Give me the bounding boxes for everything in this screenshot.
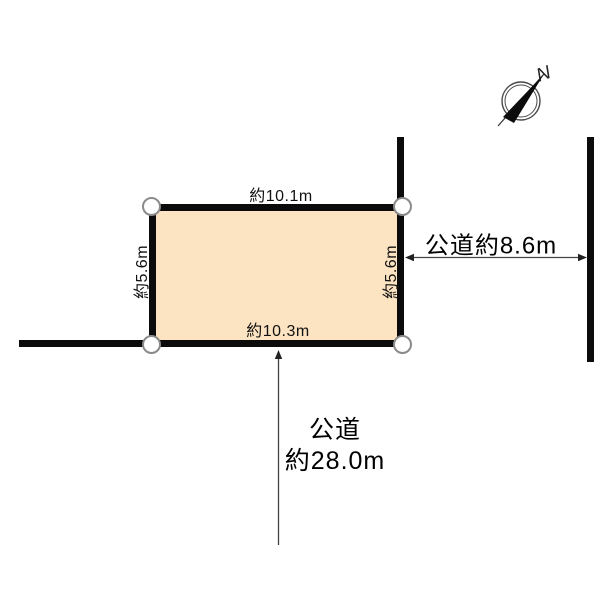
compass-needle bbox=[503, 74, 544, 123]
plot-right-edge-label: 約5.6m bbox=[377, 245, 401, 299]
road-bottom-label: 公道 約28.0m bbox=[285, 415, 385, 477]
corner-marker-bottom-right bbox=[393, 335, 412, 354]
corner-marker-bottom-left bbox=[142, 335, 161, 354]
road-line-right-vertical bbox=[587, 137, 594, 362]
road-bottom-label-line2: 約28.0m bbox=[285, 446, 385, 477]
plot-left-edge-label: 約5.6m bbox=[128, 245, 152, 299]
compass-icon: N bbox=[498, 62, 554, 126]
compass-north-label: N bbox=[534, 62, 554, 87]
plot-bottom-edge-label: 約10.3m bbox=[246, 317, 309, 341]
road-bottom-label-line1: 公道 bbox=[285, 415, 385, 446]
road-line-upper-vertical bbox=[397, 137, 404, 204]
land-plot-diagram: 約10.1m 約10.3m 約5.6m 約5.6m 公道約8.6m 公道 約28… bbox=[0, 0, 600, 600]
road-right-width-label: 公道約8.6m bbox=[425, 226, 557, 261]
plot-top-edge-label: 約10.1m bbox=[249, 182, 312, 206]
corner-marker-top-right bbox=[393, 197, 412, 216]
road-line-left-horizontal bbox=[19, 340, 149, 347]
road-length-arrow bbox=[275, 350, 282, 545]
corner-marker-top-left bbox=[142, 197, 161, 216]
